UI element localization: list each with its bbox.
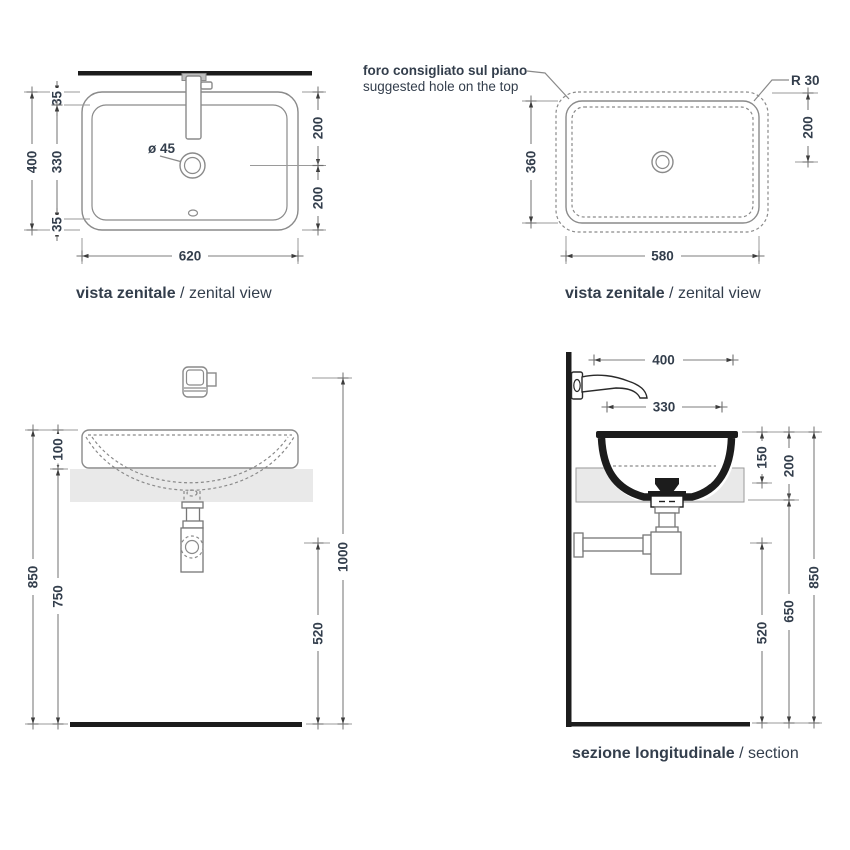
svg-text:1000: 1000: [336, 542, 351, 572]
svg-text:330: 330: [50, 151, 65, 174]
svg-text:400: 400: [652, 353, 675, 368]
svg-text:850: 850: [26, 566, 41, 589]
svg-text:35: 35: [50, 217, 65, 233]
floor-line: [70, 722, 302, 727]
radius-leader-line: [754, 80, 789, 101]
faucet-handle: [201, 82, 212, 89]
dim-tap-height: 1000: [335, 378, 351, 724]
svg-text:200: 200: [782, 455, 797, 478]
svg-text:35: 35: [50, 91, 65, 107]
dim-right-lower: 200: [310, 166, 326, 231]
svg-text:520: 520: [755, 622, 770, 645]
faucet-body: [186, 76, 201, 139]
dim-right-upper: 200: [310, 92, 326, 166]
dim-outlet-height: 520: [754, 543, 770, 723]
note-english: suggested hole on the top: [363, 79, 518, 94]
wall-spout: [582, 375, 647, 398]
dim-width: 580: [566, 248, 759, 264]
note-italian: foro consigliato sul piano: [363, 63, 527, 78]
drain-box: [651, 496, 683, 507]
basin-front: [82, 430, 298, 468]
dim-inner-height: 330: [49, 105, 65, 219]
horizontal-pipe: [583, 538, 647, 551]
dim-width: 620: [82, 248, 298, 264]
view-title: vista zenitale / zenital view: [565, 285, 761, 302]
dim-total-height: 850: [806, 432, 822, 723]
drain-flange: [182, 502, 203, 508]
dim-total-height: 850: [25, 430, 41, 724]
svg-text:330: 330: [653, 400, 676, 415]
washbasin-technical-drawing: ø 45 400 35: [0, 0, 850, 850]
basin-rim-section: [596, 431, 738, 438]
svg-text:400: 400: [25, 151, 40, 174]
view-section: 400 330 150 200 650 520: [566, 352, 822, 762]
svg-text:650: 650: [782, 600, 797, 623]
view-zenital-basin: ø 45 400 35: [24, 71, 326, 302]
svg-text:850: 850: [807, 566, 822, 589]
dim-counter-to-floor: 750: [50, 469, 66, 724]
svg-text:150: 150: [755, 446, 770, 469]
dim-under-counter: 650: [781, 500, 797, 723]
dim-rim-bottom: 35: [50, 208, 65, 241]
view-front: 850 100 750 520 1000: [25, 367, 352, 727]
floor-line: [566, 722, 750, 727]
svg-text:200: 200: [311, 187, 326, 210]
svg-text:100: 100: [51, 438, 66, 461]
dim-basin-height: 150: [754, 432, 770, 483]
drain-outer-circle: [180, 153, 205, 178]
dim-right-upper: 200: [800, 93, 816, 162]
dim-outlet-height: 520: [310, 543, 326, 724]
corner-radius-label: R 30: [791, 73, 820, 88]
dim-basin-depth: 330: [607, 399, 722, 415]
wall-outlet-flange: [574, 533, 583, 557]
view-title: vista zenitale / zenital view: [76, 285, 272, 302]
dim-overall-height: 400: [24, 92, 40, 230]
trap-collar: [183, 521, 203, 528]
escutcheon-detail: [574, 380, 580, 392]
svg-text:750: 750: [51, 585, 66, 608]
dim-counter-offset: 200: [781, 432, 797, 500]
technical-drawing-sheet: ø 45 400 35: [0, 0, 850, 850]
svg-text:580: 580: [651, 249, 674, 264]
wall-line: [566, 352, 572, 727]
dim-rim-to-counter: 100: [50, 430, 66, 469]
bottle-trap: [181, 528, 203, 572]
note-leader-line: [527, 71, 569, 99]
svg-text:360: 360: [524, 151, 539, 174]
svg-text:200: 200: [311, 117, 326, 140]
drain-outer-circle: [652, 152, 673, 173]
mixer-spout-front: [207, 373, 216, 386]
svg-text:200: 200: [801, 116, 816, 139]
drain-diameter-label: ø 45: [148, 141, 176, 156]
view-zenital-hole: foro consigliato sul piano suggested hol…: [363, 63, 820, 302]
view-title: sezione longitudinale / section: [572, 745, 799, 762]
bottle-trap-section: [651, 532, 681, 574]
svg-text:520: 520: [311, 622, 326, 645]
dim-height: 360: [523, 101, 539, 223]
dim-tap-depth: 400: [594, 352, 733, 368]
tailpipe-flange: [655, 507, 679, 513]
countertop-band: [70, 469, 313, 502]
svg-text:620: 620: [179, 249, 202, 264]
